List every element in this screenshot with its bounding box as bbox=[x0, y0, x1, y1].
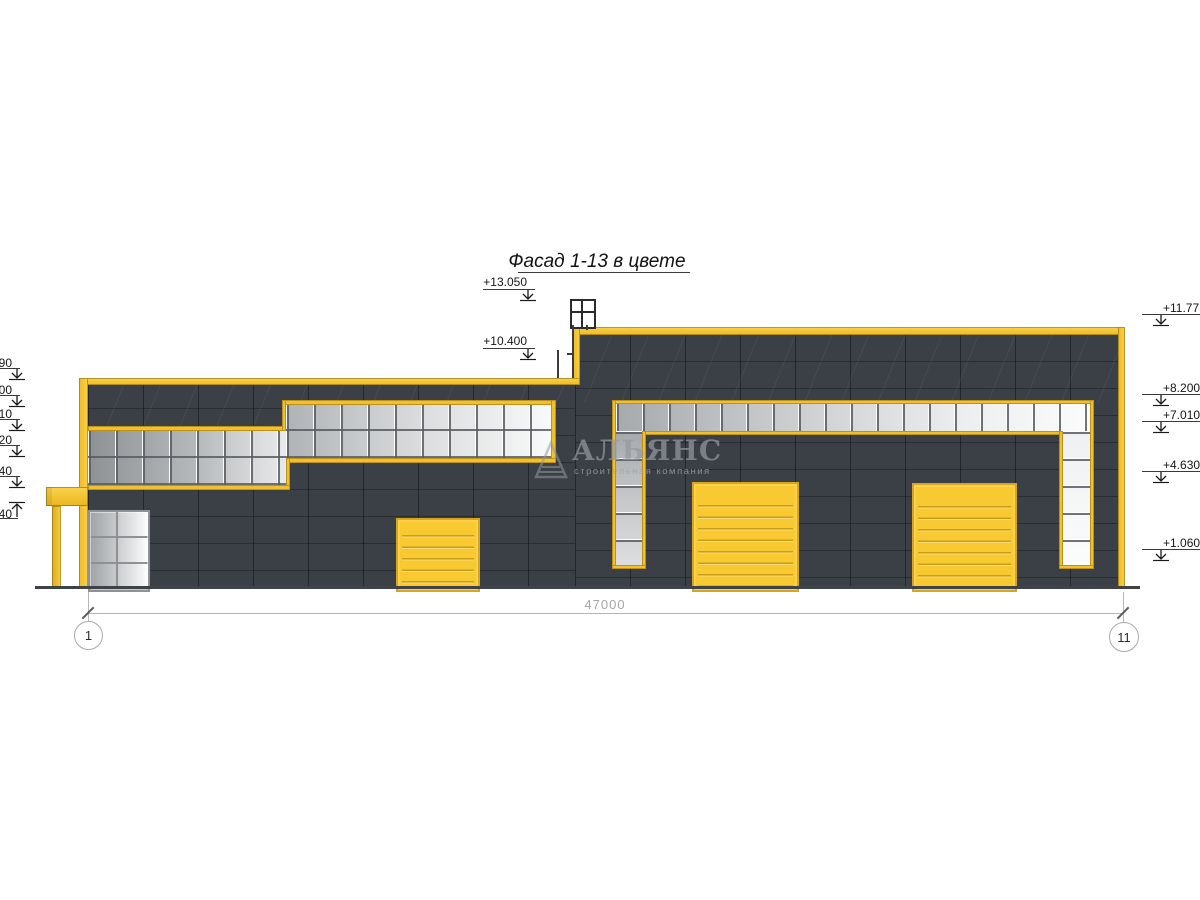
stepped-window-band-low bbox=[88, 431, 286, 486]
elevation-arrow-down-icon bbox=[1150, 315, 1172, 327]
roof-structure-leg bbox=[586, 325, 588, 330]
window-frame-top bbox=[612, 400, 1094, 404]
elevation-arrow-up-icon bbox=[6, 501, 28, 519]
elevation-marker-right-8200: +8.200 bbox=[1142, 381, 1200, 407]
roof-ladder-rail bbox=[572, 325, 574, 379]
parapet-trim-main bbox=[573, 327, 1125, 335]
elevation-arrow-down-icon bbox=[6, 369, 28, 381]
garage-door-2 bbox=[692, 482, 799, 592]
extension-line-left bbox=[88, 592, 89, 622]
corner-trim-annex-left bbox=[79, 378, 88, 588]
garage-door-2-slats bbox=[698, 496, 793, 587]
canopy-post bbox=[52, 506, 61, 588]
entrance-door-mullion bbox=[116, 512, 118, 586]
stepped-frame-bottom-high bbox=[286, 458, 556, 463]
stepped-window-band-high bbox=[286, 404, 552, 459]
garage-door-3 bbox=[912, 483, 1017, 592]
elevation-arrow-down-icon bbox=[1150, 395, 1172, 407]
elevation-marker-13050: +13.050 bbox=[455, 275, 535, 301]
elevation-arrow-down-icon bbox=[6, 446, 28, 458]
parapet-trim-annex bbox=[79, 378, 580, 385]
roof-ladder-bracket bbox=[567, 353, 573, 355]
corner-trim-main-left bbox=[573, 327, 580, 383]
stepped-frame-step-upper bbox=[282, 400, 286, 431]
window-frame-left bbox=[612, 400, 616, 569]
elevation-marker-left-5: 40 bbox=[0, 464, 40, 490]
elevation-marker-left-4: 20 bbox=[0, 433, 40, 459]
window-frame-right bbox=[1090, 400, 1094, 569]
elevation-marker-right-1060: +1.060 bbox=[1142, 536, 1200, 562]
elevation-arrow-down-icon bbox=[517, 290, 539, 302]
entrance-canopy bbox=[46, 487, 88, 506]
axis-bubble-1: 1 bbox=[74, 621, 103, 650]
stepped-frame-bottom-low bbox=[88, 485, 290, 490]
facade-drawing: Фасад 1-13 в цвете bbox=[0, 0, 1200, 900]
ground-line bbox=[35, 586, 1140, 589]
elevation-marker-right-11770: +11.77 bbox=[1142, 301, 1200, 327]
elevation-arrow-down-icon bbox=[1150, 422, 1172, 434]
corner-trim-main-right bbox=[1118, 327, 1125, 588]
garage-door-3-slats bbox=[918, 497, 1011, 587]
elevation-marker-left-2: 00 bbox=[0, 383, 40, 409]
elevation-arrow-down-icon bbox=[1150, 550, 1172, 562]
elevation-marker-left-3: 10 bbox=[0, 407, 40, 433]
elevation-marker-right-7010: +7.010 bbox=[1142, 408, 1200, 434]
ribbon-window-band bbox=[616, 404, 1090, 431]
dimension-value: 47000 bbox=[540, 597, 670, 612]
elevation-arrow-down-icon bbox=[517, 349, 539, 361]
axis-bubble-11: 11 bbox=[1109, 622, 1139, 652]
window-frame-leg-right-sill bbox=[1059, 565, 1094, 569]
dimension-line bbox=[88, 613, 1123, 614]
company-logo-watermark-icon bbox=[532, 440, 570, 480]
garage-door-1-slats bbox=[402, 526, 474, 587]
roof-pipe bbox=[557, 350, 559, 381]
window-leg-right bbox=[1063, 431, 1090, 565]
stepped-frame-top-low bbox=[88, 426, 286, 431]
stepped-frame-top-high bbox=[282, 400, 556, 405]
drawing-title: Фасад 1-13 в цвете bbox=[447, 251, 747, 273]
window-frame-leg-right-inner bbox=[1059, 431, 1063, 569]
window-frame-leg-left-sill bbox=[612, 565, 646, 569]
elevation-marker-left-1: 90 bbox=[0, 356, 40, 382]
elevation-arrow-down-icon bbox=[6, 420, 28, 432]
elevation-arrow-down-icon bbox=[6, 477, 28, 489]
entrance-door bbox=[88, 510, 150, 592]
elevation-arrow-down-icon bbox=[1150, 472, 1172, 484]
elevation-marker-left-6-up: 40 bbox=[0, 505, 40, 531]
elevation-marker-10400: +10.400 bbox=[455, 334, 535, 360]
elevation-marker-right-4630: +4.630 bbox=[1142, 458, 1200, 484]
garage-door-1 bbox=[396, 518, 480, 592]
watermark-tagline: строительная компания bbox=[574, 466, 711, 477]
extension-line-right bbox=[1123, 592, 1124, 622]
watermark-company-name: АЛЬЯНС bbox=[572, 434, 722, 467]
title-underline bbox=[518, 272, 690, 273]
